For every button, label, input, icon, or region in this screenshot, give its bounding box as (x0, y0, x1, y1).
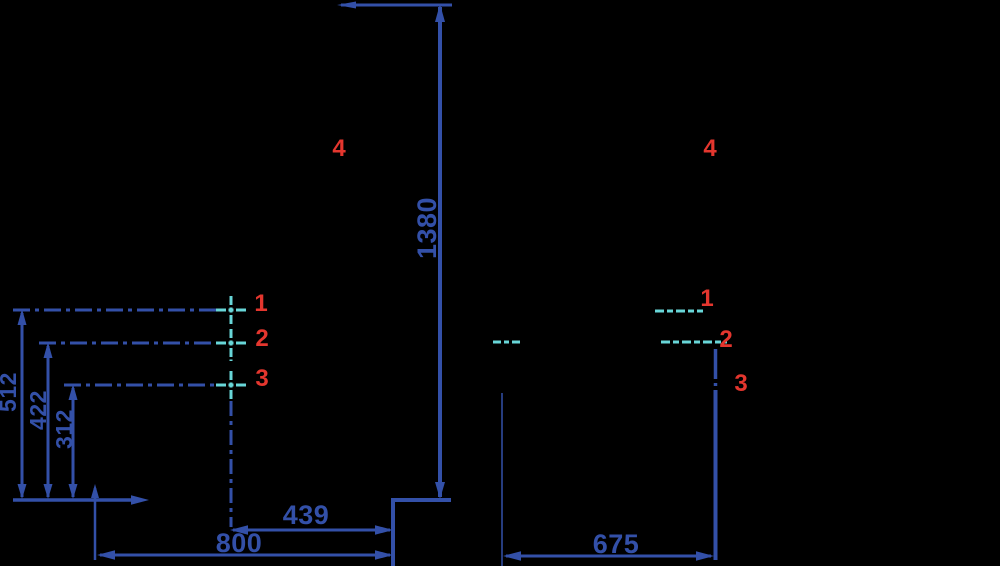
seat-depth-value: 439 (283, 500, 330, 530)
front-width-arrow-left (503, 551, 521, 561)
side-view: 1380 512 422 312 (0, 2, 452, 566)
overall-height-arrow-bottom (435, 482, 445, 499)
technical-drawing: 1380 512 422 312 (0, 0, 1000, 566)
front-width-value: 675 (593, 529, 640, 559)
base-depth-arrow-left (97, 550, 115, 560)
seat-step-outline (393, 500, 451, 566)
side-point4-label: 4 (332, 135, 346, 162)
point3-height-arrow-bottom (69, 484, 78, 499)
side-point3-label: 3 (255, 365, 268, 392)
point1-height-value: 512 (0, 372, 21, 412)
front-width-arrow-right (696, 551, 714, 561)
front-point1-label: 1 (700, 285, 713, 312)
side-point2-label: 2 (255, 325, 268, 352)
front-point4-label: 4 (703, 135, 717, 162)
point3-height-dimension: 312 (51, 384, 78, 499)
point3-marker (216, 371, 246, 399)
side-point1-label: 1 (254, 290, 267, 317)
seat-depth-arrow-right (375, 525, 393, 535)
point2-height-value: 422 (25, 390, 51, 430)
point1-marker (216, 296, 246, 324)
point2-height-arrow-bottom (44, 484, 53, 499)
front-point3-label: 3 (734, 370, 747, 397)
point3-height-value: 312 (51, 409, 77, 449)
overall-height-dimension: 1380 (412, 4, 445, 499)
top-reference-arrow (337, 2, 356, 9)
front-point2-label: 2 (719, 326, 732, 353)
point2-marker (216, 329, 246, 361)
overall-height-arrow-top (435, 4, 445, 22)
overall-height-value: 1380 (412, 197, 442, 259)
front-view: 1 2 3 4 675 (493, 135, 748, 566)
point1-height-dimension: 512 (0, 309, 27, 499)
base-depth-dimension: 800 (91, 484, 393, 560)
point1-height-arrow-bottom (18, 484, 27, 499)
floor-reference-arrow (131, 495, 149, 505)
point2-height-dimension: 422 (25, 342, 53, 499)
front-width-dimension: 675 (503, 529, 714, 561)
base-depth-arrow-right (375, 550, 393, 560)
base-depth-extension-arrow (91, 484, 99, 498)
base-depth-value: 800 (216, 528, 263, 558)
drawing-canvas: 1380 512 422 312 (0, 0, 1000, 566)
